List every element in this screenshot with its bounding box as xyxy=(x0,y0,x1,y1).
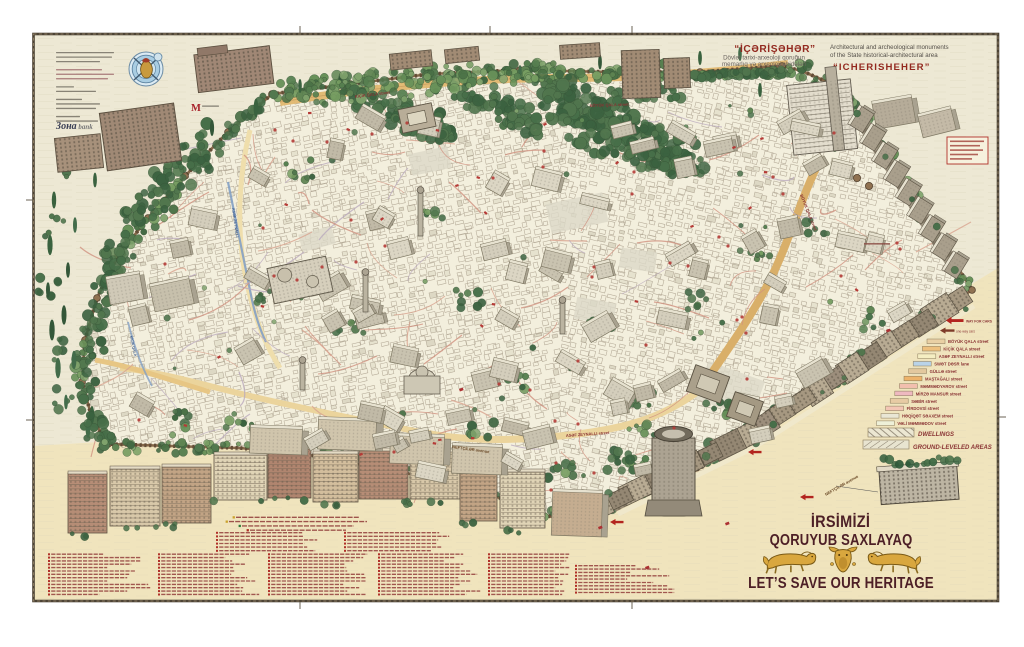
svg-text:HƏQİQƏT SƏAXEM street: HƏQİQƏT SƏAXEM street xyxy=(902,414,954,419)
svg-text:one-way cars: one-way cars xyxy=(956,330,975,334)
svg-text:MAŞTAĞALI street: MAŞTAĞALI street xyxy=(925,376,963,381)
svg-text:GROUND-LEVELED AREAS: GROUND-LEVELED AREAS xyxy=(913,445,992,451)
svg-text:Зона bank: Зона bank xyxy=(55,121,93,132)
svg-text:FİRDOVSİ street: FİRDOVSİ street xyxy=(907,406,940,411)
svg-text:DWELLINGS: DWELLINGS xyxy=(918,432,954,438)
svg-text:Architectural and archeologica: Architectural and archeological monument… xyxy=(830,44,949,51)
svg-text:memarlıq və arxeoloji abidələr: memarlıq və arxeoloji abidələri xyxy=(722,61,806,68)
svg-text:M: M xyxy=(191,103,201,114)
svg-text:ASƏF ZEYNALLI street: ASƏF ZEYNALLI street xyxy=(939,354,985,359)
svg-text:SƏBİR street: SƏBİR street xyxy=(911,399,937,404)
svg-text:WAY FOR CARS: WAY FOR CARS xyxy=(966,320,993,324)
svg-text:GÜLLƏ street: GÜLLƏ street xyxy=(930,369,958,374)
svg-text:MƏMMƏDYAROV street: MƏMMƏDYAROV street xyxy=(920,384,967,389)
svg-text:VƏLİ MƏMMƏDOV street: VƏLİ MƏMMƏDOV street xyxy=(897,421,947,426)
svg-text:BÖYÜK QALA street: BÖYÜK QALA street xyxy=(948,339,989,344)
svg-text:of the State historical-archit: of the State historical-architectural ar… xyxy=(830,52,938,59)
svg-text:“ICHERISHEHER”: “ICHERISHEHER” xyxy=(833,62,931,73)
svg-text:LET’S SAVE OUR HERITAGE: LET’S SAVE OUR HERITAGE xyxy=(748,575,934,592)
svg-text:KİÇİK QALA street: KİÇİK QALA street xyxy=(943,347,980,352)
svg-text:MİRZƏ MANSUR street: MİRZƏ MANSUR street xyxy=(916,391,962,396)
svg-text:İRSİMİZİ: İRSİMİZİ xyxy=(811,513,870,531)
svg-text:SWƏT DƏSR lane: SWƏT DƏSR lane xyxy=(934,362,970,367)
svg-text:QORUYUB SAXLAYAQ: QORUYUB SAXLAYAQ xyxy=(770,532,913,550)
svg-text:“İÇƏRİŞƏHƏR”: “İÇƏRİŞƏHƏR” xyxy=(734,42,815,55)
